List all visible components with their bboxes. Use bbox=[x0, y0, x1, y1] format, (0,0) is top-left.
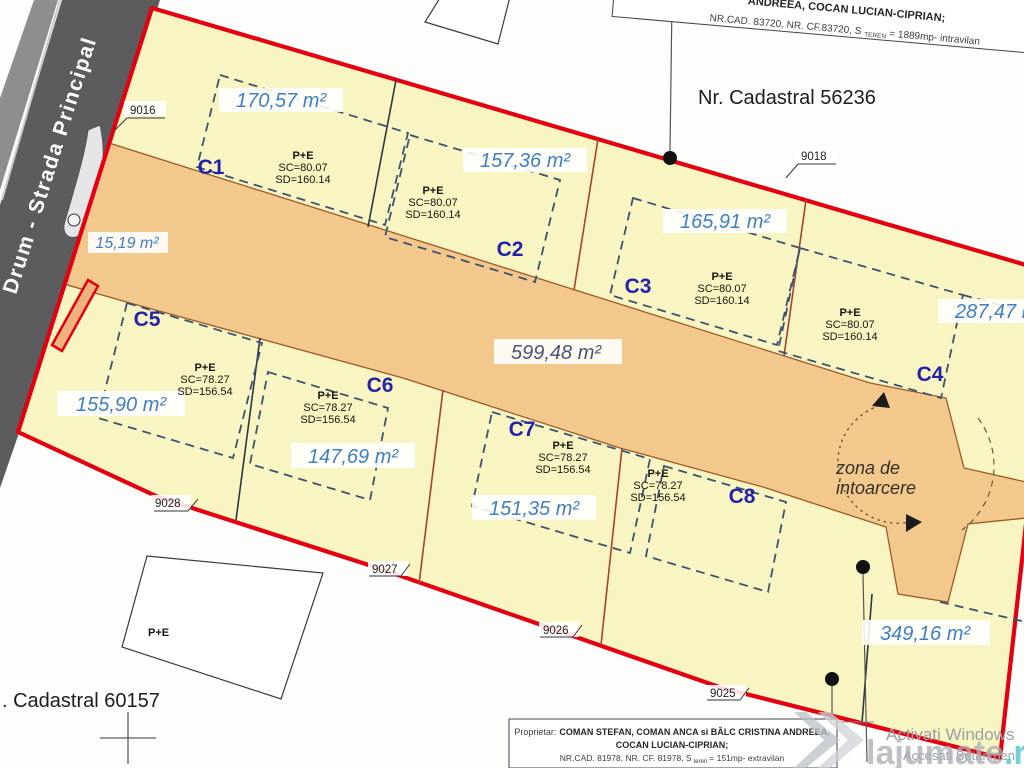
owner-box-top: ANDREEA, COCAN LUCIAN-CIPRIAN; NR.CAD. 8… bbox=[612, 0, 1024, 57]
sd-c8: SD=156.54 bbox=[630, 492, 685, 504]
parcel-id-c5: C5 bbox=[134, 308, 161, 331]
survey-crosshair bbox=[100, 712, 156, 764]
point-9018: 9018 bbox=[801, 151, 827, 163]
cadastral-number-left: . Cadastral 60157 bbox=[2, 690, 160, 712]
point-9025: 9025 bbox=[710, 688, 736, 700]
sc-c8: SC=78.27 bbox=[633, 480, 682, 492]
owner-bottom-line2: COCAN LUCIAN-CIPRIAN; bbox=[616, 740, 729, 750]
sd-c7: SD=156.54 bbox=[535, 464, 590, 476]
sd-c4: SD=160.14 bbox=[822, 331, 877, 343]
area-label-corner: 349,16 m² bbox=[880, 623, 971, 645]
sd-c2: SD=160.14 bbox=[405, 209, 460, 221]
road-manhole bbox=[68, 214, 80, 226]
sd-c3: SD=160.14 bbox=[694, 295, 749, 307]
area-label-c5: 155,90 m² bbox=[76, 394, 167, 416]
regime-c3: P+E bbox=[711, 271, 732, 283]
area-label-access-road: 599,48 m² bbox=[511, 342, 602, 364]
area-label-c3: 165,91 m² bbox=[680, 211, 771, 233]
regime-c2: P+E bbox=[422, 185, 443, 197]
parcel-id-c4: C4 bbox=[917, 363, 944, 386]
sc-c2: SC=80.07 bbox=[408, 197, 457, 209]
parcel-id-c2: C2 bbox=[497, 238, 524, 261]
area-label-c1: 170,57 m² bbox=[236, 90, 327, 112]
area-label-c4: 287,47 m² bbox=[954, 301, 1024, 323]
parcel-id-c3: C3 bbox=[625, 275, 652, 298]
point-9027: 9027 bbox=[372, 564, 398, 576]
neighbor-building-top bbox=[425, 0, 513, 44]
point-9016: 9016 bbox=[130, 105, 156, 117]
sc-c3: SC=80.07 bbox=[697, 283, 746, 295]
area-label-c7: 151,35 m² bbox=[489, 498, 580, 520]
svg-text:intoarcere: intoarcere bbox=[836, 478, 916, 498]
sd-c1: SD=160.14 bbox=[275, 174, 330, 186]
sd-c5: SD=156.54 bbox=[177, 386, 232, 398]
sc-c7: SC=78.27 bbox=[538, 452, 587, 464]
area-label-entrance: 15,19 m² bbox=[95, 235, 159, 252]
cadastral-plan-screenshot: Drum - Strada Principal P+E bbox=[0, 0, 1024, 768]
regime-c8: P+E bbox=[647, 468, 668, 480]
regime-c7: P+E bbox=[552, 440, 573, 452]
cadastral-number-right: Nr. Cadastral 56236 bbox=[698, 87, 876, 109]
neighbor-building-label: P+E bbox=[148, 627, 169, 639]
area-label-c2: 157,36 m² bbox=[480, 150, 571, 172]
watermark-text: lajumate.ro bbox=[866, 734, 1024, 768]
owner-box-bottom: Proprietar:COMAN STEFAN, COMAN ANCA si B… bbox=[509, 719, 837, 768]
sc-c1: SC=80.07 bbox=[278, 162, 327, 174]
point-9028: 9028 bbox=[155, 498, 181, 510]
parcel-id-c6: C6 bbox=[367, 374, 394, 397]
sc-c5: SC=78.27 bbox=[180, 374, 229, 386]
point-9026: 9026 bbox=[543, 625, 569, 637]
svg-text:zona de: zona de bbox=[835, 458, 900, 478]
regime-c5: P+E bbox=[194, 362, 215, 374]
area-label-c6: 147,69 m² bbox=[308, 446, 399, 468]
regime-c6: P+E bbox=[317, 390, 338, 402]
sd-c6: SD=156.54 bbox=[300, 414, 355, 426]
parcel-id-c8: C8 bbox=[729, 485, 756, 508]
site-plan-svg: Drum - Strada Principal P+E bbox=[0, 0, 1024, 768]
regime-c1: P+E bbox=[292, 150, 313, 162]
owner-bottom-line1: Proprietar:COMAN STEFAN, COMAN ANCA si B… bbox=[514, 727, 829, 737]
neighbor-building-bottom-left: P+E bbox=[122, 556, 323, 699]
sc-c4: SC=80.07 bbox=[825, 319, 874, 331]
regime-c4: P+E bbox=[839, 307, 860, 319]
parcel-id-c1: C1 bbox=[198, 156, 225, 179]
parcel-id-c7: C7 bbox=[509, 418, 536, 441]
sc-c6: SC=78.27 bbox=[303, 402, 352, 414]
